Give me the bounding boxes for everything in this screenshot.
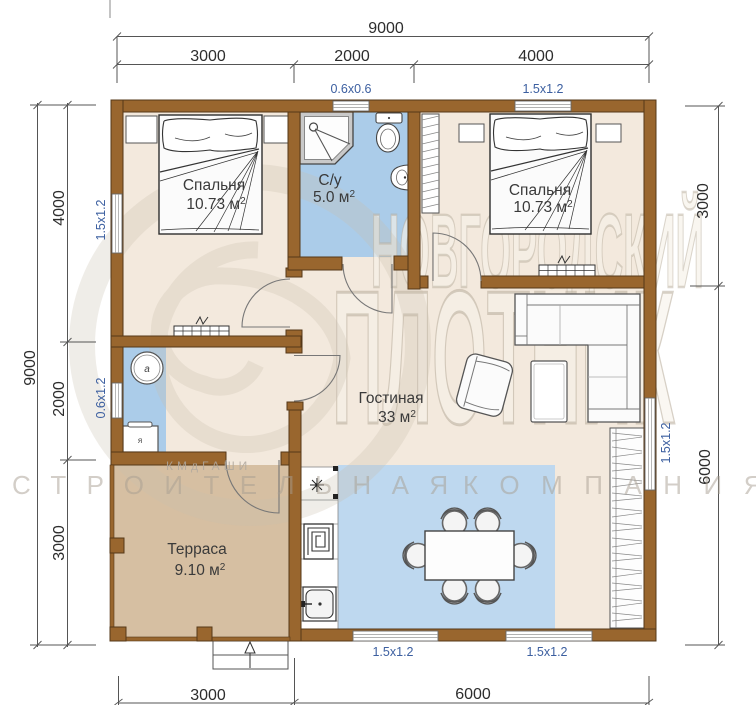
svg-text:3000: 3000 <box>695 183 712 219</box>
svg-text:Спальня: Спальня <box>509 182 571 199</box>
svg-text:4000: 4000 <box>51 190 68 226</box>
svg-text:4000: 4000 <box>518 48 554 65</box>
svg-text:9.10 м2: 9.10 м2 <box>175 562 226 579</box>
svg-text:Гостиная: Гостиная <box>358 390 423 407</box>
svg-text:10.73 м2: 10.73 м2 <box>186 196 246 213</box>
svg-text:2000: 2000 <box>51 381 68 417</box>
svg-text:3000: 3000 <box>190 687 226 704</box>
svg-text:С/у: С/у <box>318 172 342 189</box>
svg-text:КОМПАНИЯ: КОМПАНИЯ <box>463 470 756 500</box>
svg-text:3000: 3000 <box>51 525 68 561</box>
svg-text:6000: 6000 <box>455 686 491 703</box>
svg-text:10.73 м2: 10.73 м2 <box>513 199 573 216</box>
svg-text:2000: 2000 <box>334 48 370 65</box>
svg-text:1.5x1.2: 1.5x1.2 <box>659 422 673 463</box>
svg-text:1.5x1.2: 1.5x1.2 <box>372 645 413 659</box>
svg-text:Спальня: Спальня <box>183 177 245 194</box>
svg-text:1.5x1.2: 1.5x1.2 <box>522 82 563 96</box>
svg-text:3000: 3000 <box>190 48 226 65</box>
svg-text:СТРОИТЕЛЬНАЯ: СТРОИТЕЛЬНАЯ <box>12 470 469 500</box>
svg-text:9000: 9000 <box>22 350 39 386</box>
svg-text:0.6x1.2: 0.6x1.2 <box>94 377 108 418</box>
svg-text:0.6x0.6: 0.6x0.6 <box>330 82 371 96</box>
svg-text:1.5x1.2: 1.5x1.2 <box>526 645 567 659</box>
svg-text:5.0 м2: 5.0 м2 <box>313 189 356 206</box>
svg-text:9000: 9000 <box>368 20 404 37</box>
svg-text:1.5x1.2: 1.5x1.2 <box>94 199 108 240</box>
svg-text:я: я <box>138 436 142 445</box>
svg-text:a: a <box>144 364 150 375</box>
svg-text:Терраса: Терраса <box>167 541 227 558</box>
